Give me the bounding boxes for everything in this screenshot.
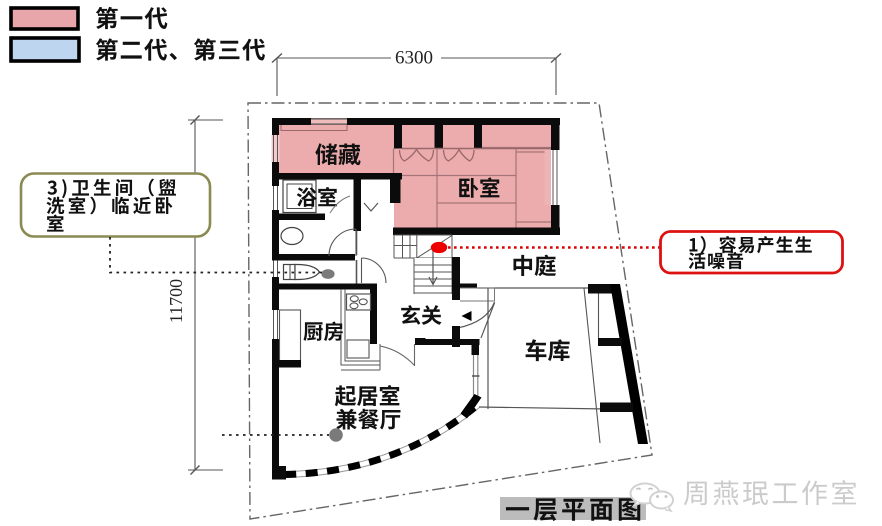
- svg-text:11700: 11700: [166, 279, 186, 323]
- svg-text:6300: 6300: [395, 48, 433, 69]
